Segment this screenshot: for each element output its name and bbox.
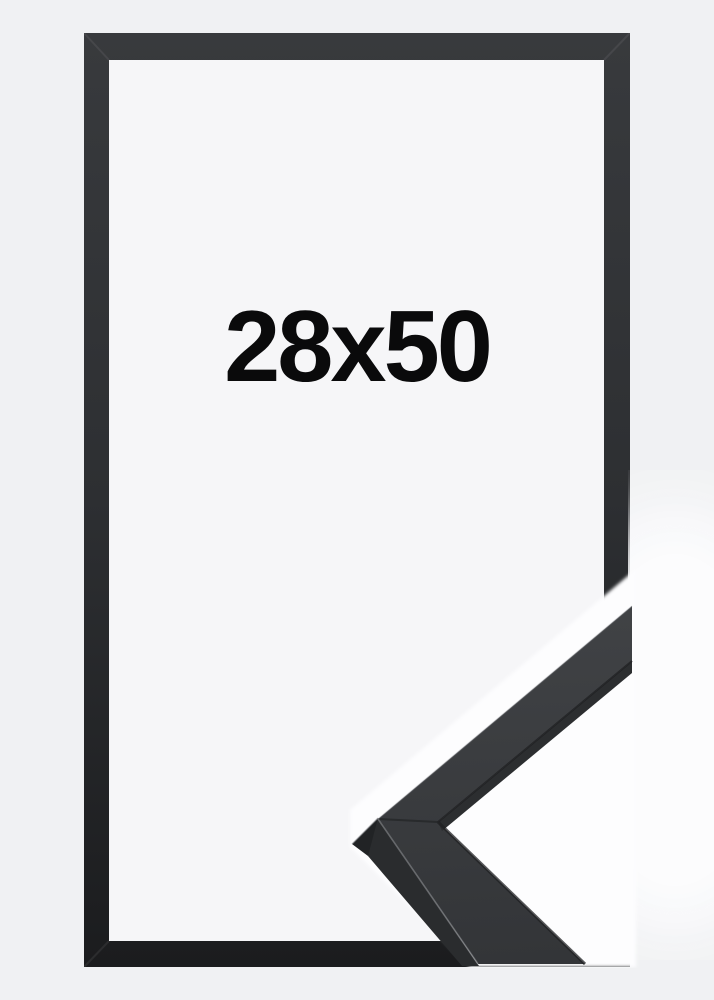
frame-illustration <box>0 0 714 1000</box>
product-image: 28x50 <box>0 0 714 1000</box>
size-label: 28x50 <box>0 297 714 398</box>
